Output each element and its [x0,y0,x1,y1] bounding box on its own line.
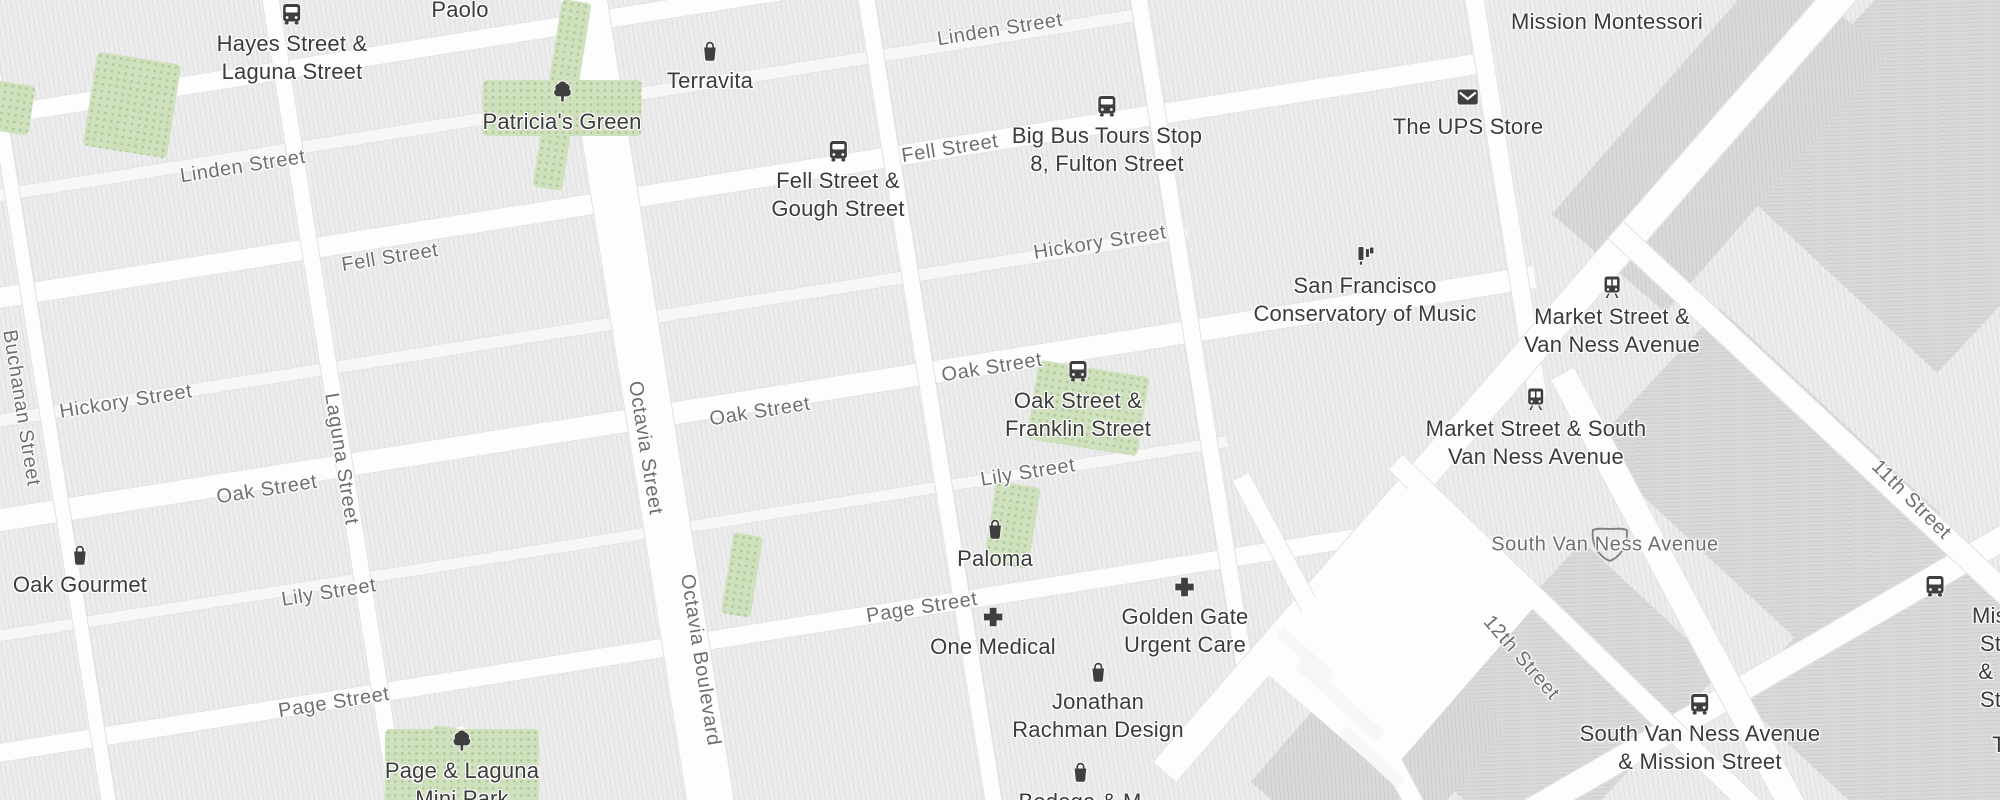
label-text: The UPS Store [1393,113,1544,141]
label-text: Market Street & Van Ness Avenue [1524,303,1700,359]
street-label-south-van-ness-avenue: South Van Ness Avenue [1491,534,1719,557]
transit-stop-label-big-bus-tours-stop-8[interactable]: Big Bus Tours Stop 8, Fulton Street [1012,94,1202,178]
bus-icon [1688,692,1712,716]
transit-stop-label-mission-street-11th-street-stop[interactable]: Mission Street & 11th Street [1972,574,2000,714]
label-text: Big Bus Tours Stop 8, Fulton Street [1012,122,1202,178]
bag-icon [983,517,1007,541]
label-text: Mission Street & 11th Street [1972,602,2000,714]
transit-stop-label-fell-street-gough-street-stop[interactable]: Fell Street & Gough Street [771,139,904,223]
bag-icon [1086,660,1110,684]
rail-icon [1524,387,1548,411]
bus-icon [826,139,850,163]
rail-icon [1600,275,1624,299]
poi-label-oak-gourmet[interactable]: Oak Gourmet [13,543,147,599]
poi-label-the-ups-store[interactable]: The UPS Store [1393,85,1544,141]
label-text: Jonathan Rachman Design [1012,688,1184,744]
poi-label-mission-montessori[interactable]: Mission Montessori [1511,8,1703,36]
bus-icon [1066,359,1090,383]
label-text: Oak Street & Franklin Street [1005,387,1151,443]
poi-label-clipped-shop-label[interactable]: Bodega & M [1018,760,1141,800]
cross-icon [1173,575,1197,599]
label-text: Page & Laguna Mini Park [385,757,539,800]
map-canvas[interactable]: Linden StreetLinden StreetFell StreetFel… [0,0,2000,800]
tree-icon [550,80,574,104]
label-text: Fell Street & Gough Street [771,167,904,223]
label-text: Bodega & M [1018,788,1141,800]
bag-icon [68,543,92,567]
tree-icon [450,729,474,753]
label-text: Paolo [431,0,488,24]
label-text: Paloma [957,545,1033,573]
poi-label-one-medical[interactable]: One Medical [930,605,1056,661]
cross-icon [981,605,1005,629]
bus-icon [1095,94,1119,118]
poi-label-paloma[interactable]: Paloma [957,517,1033,573]
label-text: Hayes Street & Laguna Street [217,30,368,86]
poi-label-patricias-green[interactable]: Patricia's Green [482,80,641,136]
hayes-green [83,51,182,158]
poi-label-jonathan-rachman-design[interactable]: Jonathan Rachman Design [1012,660,1184,744]
poi-label-page-laguna-mini-park[interactable]: Page & Laguna Mini Park [385,729,539,800]
label-text: Oak Gourmet [13,571,147,599]
label-text: Mission Montessori [1511,8,1703,36]
label-text: Market Street & South Van Ness Avenue [1426,415,1647,471]
transit-stop-label-oak-street-franklin-street-stop[interactable]: Oak Street & Franklin Street [1005,359,1151,443]
label-text: T [1992,731,2000,759]
transit-stop-label-market-street-van-ness-avenue-stop[interactable]: Market Street & Van Ness Avenue [1524,275,1700,359]
label-text: Golden Gate Urgent Care [1122,603,1249,659]
poi-label-sf-conservatory-of-music[interactable]: San Francisco Conservatory of Music [1253,244,1476,328]
label-text: South Van Ness Avenue & Mission Street [1580,720,1821,776]
transit-stop-label-market-street-south-van-ness-stop[interactable]: Market Street & South Van Ness Avenue [1426,387,1647,471]
poi-label-paolo[interactable]: Paolo [431,0,488,24]
poi-label-clipped-edge-label[interactable]: T [1992,731,2000,759]
poi-label-golden-gate-urgent-care[interactable]: Golden Gate Urgent Care [1122,575,1249,659]
poi-label-terravita[interactable]: Terravita [667,39,753,95]
label-text: One Medical [930,633,1056,661]
bag-icon [698,39,722,63]
bus-icon [280,2,304,26]
bag-icon [1068,760,1092,784]
label-text: Patricia's Green [482,108,641,136]
transit-stop-label-hayes-street-laguna-street-stop[interactable]: Hayes Street & Laguna Street [217,2,368,86]
label-text: Terravita [667,67,753,95]
bus-icon [1923,574,1947,598]
music-icon [1353,244,1377,268]
label-text: San Francisco Conservatory of Music [1253,272,1476,328]
mail-icon [1456,85,1480,109]
transit-stop-label-south-van-ness-mission-street-stop[interactable]: South Van Ness Avenue & Mission Street [1580,692,1821,776]
